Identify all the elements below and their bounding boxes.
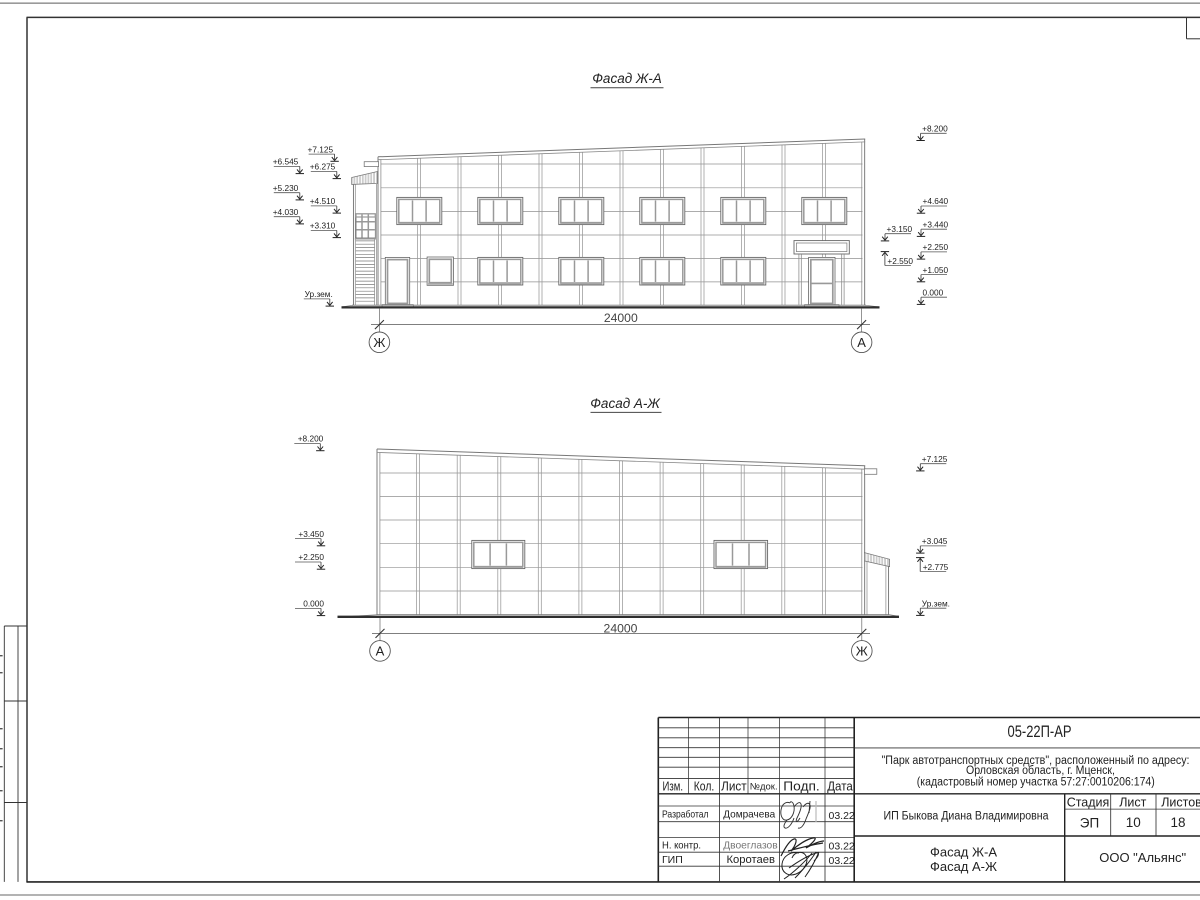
svg-text:+2.550: +2.550 <box>887 256 913 266</box>
svg-text:+8.200: +8.200 <box>922 124 948 134</box>
svg-text:ЭП: ЭП <box>1080 816 1099 831</box>
svg-text:24000: 24000 <box>604 621 638 635</box>
svg-text:Ур.зем.: Ур.зем. <box>922 598 950 608</box>
svg-text:+3.045: +3.045 <box>922 536 948 546</box>
svg-text:+4.510: +4.510 <box>310 196 336 206</box>
svg-text:ГИП: ГИП <box>662 854 683 866</box>
svg-text:Кол.: Кол. <box>694 779 715 793</box>
svg-text:+2.250: +2.250 <box>923 242 949 252</box>
svg-text:Фасад А-Ж: Фасад А-Ж <box>930 859 997 874</box>
svg-text:А: А <box>376 644 385 659</box>
svg-text:Лист: Лист <box>721 779 747 793</box>
svg-text:+7.125: +7.125 <box>307 144 333 154</box>
svg-text:+1.050: +1.050 <box>923 265 949 275</box>
svg-text:+4.030: +4.030 <box>273 207 299 217</box>
svg-text:05-22П-АР: 05-22П-АР <box>1008 722 1072 741</box>
svg-text:24000: 24000 <box>604 311 638 325</box>
svg-text:ООО "Альянс": ООО "Альянс" <box>1099 850 1186 865</box>
svg-text:Фасад Ж-А: Фасад Ж-А <box>930 844 997 859</box>
svg-text:№док.: №док. <box>750 782 778 793</box>
svg-text:Подп.: Подп. <box>783 779 820 793</box>
svg-text:Домрачева: Домрачева <box>723 809 775 821</box>
svg-text:10: 10 <box>1126 815 1141 830</box>
svg-text:+3.450: +3.450 <box>298 529 324 539</box>
svg-text:+5.230: +5.230 <box>273 183 299 193</box>
svg-text:18: 18 <box>1170 815 1185 830</box>
svg-text:+4.640: +4.640 <box>923 196 949 206</box>
svg-text:А: А <box>857 335 866 350</box>
svg-text:03.22: 03.22 <box>829 810 855 822</box>
svg-text:Н. контр.: Н. контр. <box>662 840 701 852</box>
svg-text:+2.250: +2.250 <box>298 552 324 562</box>
svg-text:Коротаев: Коротаев <box>727 854 776 866</box>
svg-text:+6.545: +6.545 <box>273 157 299 167</box>
svg-text:+7.125: +7.125 <box>922 454 948 464</box>
svg-text:ИП Быкова Диана Владимировна: ИП Быкова Диана Владимировна <box>884 811 1050 823</box>
svg-text:Дата: Дата <box>827 779 853 793</box>
svg-text:0.000: 0.000 <box>303 599 324 609</box>
svg-text:Фасад А-Ж: Фасад А-Ж <box>590 396 661 411</box>
svg-text:Ур.зем.: Ур.зем. <box>305 289 333 299</box>
svg-text:Фасад Ж-А: Фасад Ж-А <box>592 71 662 86</box>
svg-text:+6.275: +6.275 <box>310 162 336 172</box>
svg-text:Изм.: Изм. <box>663 779 684 793</box>
svg-text:+2.775: +2.775 <box>923 562 949 572</box>
svg-text:+8.200: +8.200 <box>298 434 324 444</box>
svg-text:+3.150: +3.150 <box>887 224 913 234</box>
svg-text:Листов: Листов <box>1161 795 1200 809</box>
svg-text:03.22: 03.22 <box>829 841 855 853</box>
svg-text:Стадия: Стадия <box>1067 795 1110 809</box>
svg-text:Ж: Ж <box>373 335 385 350</box>
svg-text:Двоеглазов: Двоеглазов <box>723 840 778 852</box>
svg-text:Лист: Лист <box>1119 795 1146 809</box>
svg-text:+3.310: +3.310 <box>310 221 336 231</box>
svg-text:Разработал: Разработал <box>662 809 709 821</box>
svg-text:Орловская область, г. Мценск,: Орловская область, г. Мценск, <box>966 765 1115 777</box>
svg-text:03.22: 03.22 <box>829 855 855 867</box>
svg-text:0.000: 0.000 <box>923 287 944 297</box>
svg-text:(кадастровый номер участка 57:: (кадастровый номер участка 57:27:0010206… <box>917 776 1155 788</box>
svg-text:+3.440: +3.440 <box>923 219 949 229</box>
svg-text:Ж: Ж <box>856 644 868 659</box>
